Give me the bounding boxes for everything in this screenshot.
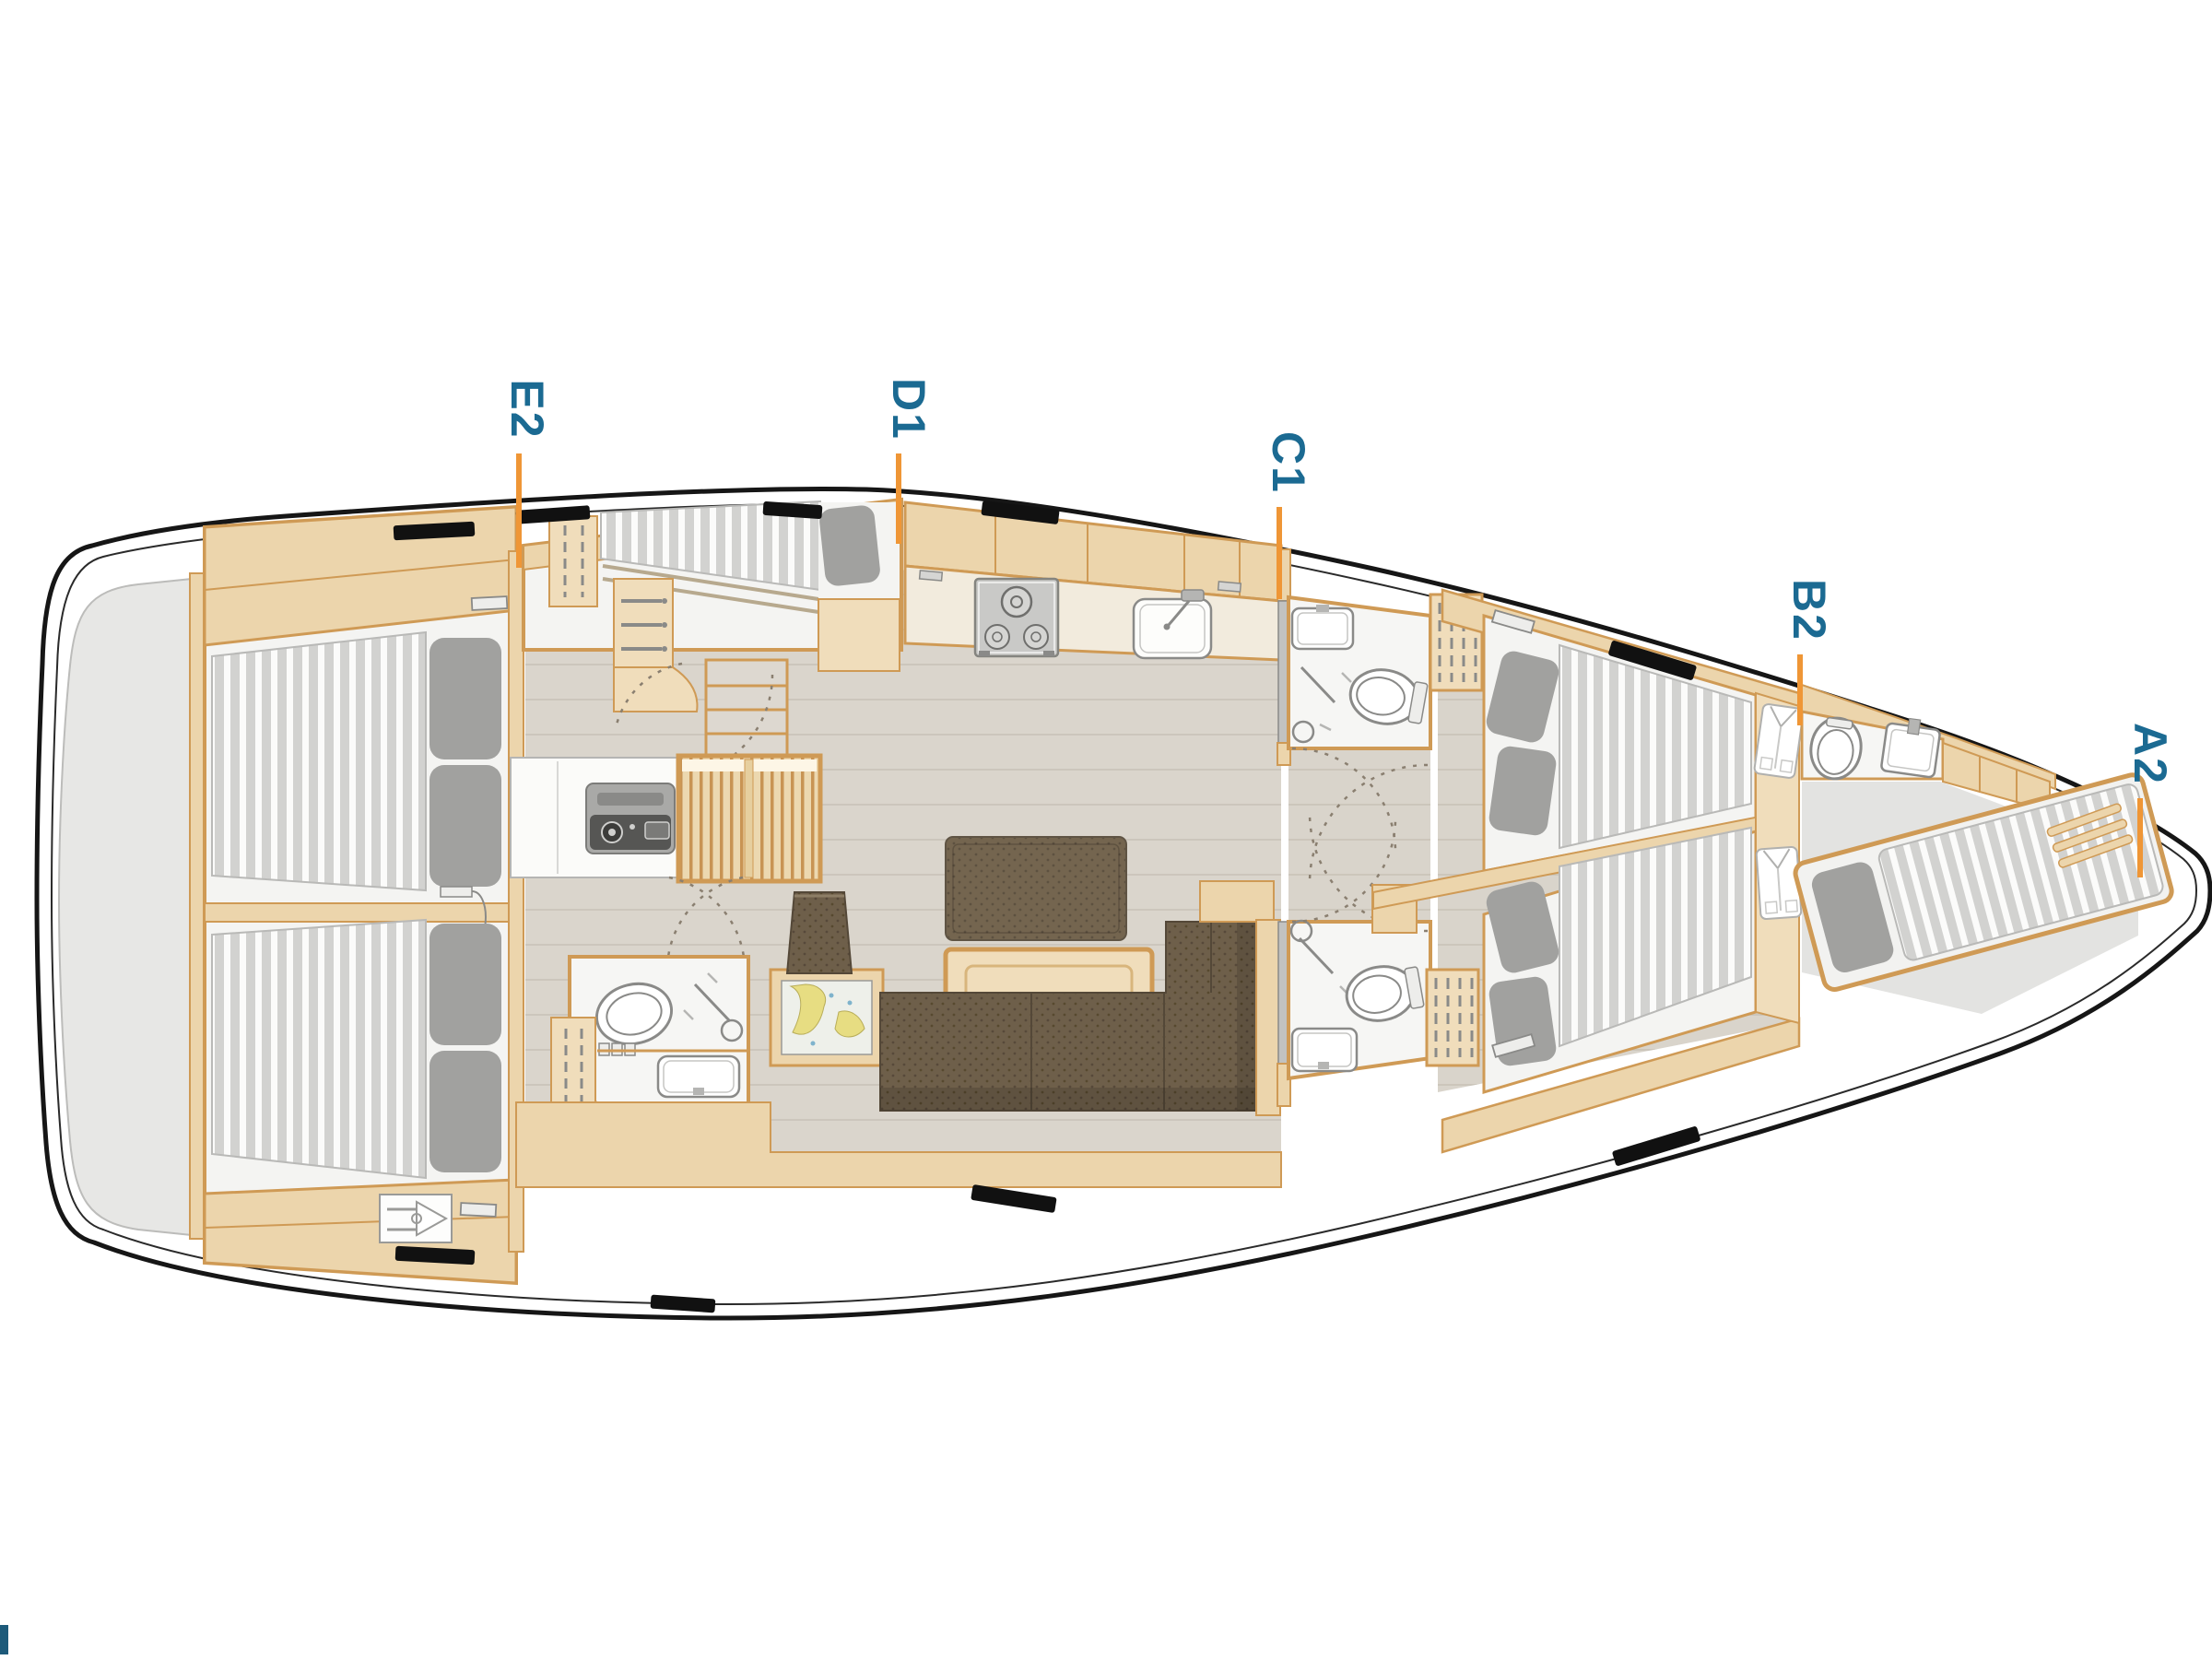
companionway-steps: [706, 660, 787, 756]
latch-icon: [1218, 582, 1241, 592]
stove-icon: [975, 579, 1058, 656]
stool: [787, 892, 852, 973]
cabin-d1: [524, 500, 901, 671]
louver-vent-icon: [1427, 970, 1478, 1065]
steering-gear-icon: [380, 1195, 452, 1242]
sink-icon: [1292, 1029, 1357, 1071]
sliding-door: [1278, 922, 1288, 1064]
label-b2-text: B2: [1783, 579, 1835, 642]
fwd-wardrobe-strip: [1754, 693, 1804, 1023]
label-a2-text: A2: [2124, 723, 2176, 785]
sink-icon: [658, 1056, 739, 1097]
aft-cabins: [190, 507, 516, 1283]
shirt-locker-icon: [1754, 703, 1804, 778]
sliding-door: [1278, 601, 1288, 743]
latch-icon: [920, 571, 943, 581]
wall-stub: [1200, 881, 1274, 922]
sink-icon: [1881, 715, 1942, 777]
latch-icon: [461, 1203, 497, 1217]
yacht-floorplan: E2 D1 C1 B2 A2: [0, 0, 2212, 1660]
head-mid-bottom: [1288, 921, 1430, 1078]
head-mid-top: [1288, 597, 1430, 748]
sink-icon: [1292, 605, 1353, 649]
leather-bench: [946, 837, 1126, 940]
pillow-icon: [818, 504, 881, 587]
chart-table-icon: [782, 981, 872, 1054]
clipped-logo-mark: [0, 1625, 8, 1654]
sink-icon: [1134, 590, 1211, 658]
latch-icon: [472, 596, 508, 610]
floorplan-page: E2 D1 C1 B2 A2: [0, 0, 2212, 1660]
stern-platform: [59, 579, 192, 1235]
double-bed-icon: [212, 632, 426, 890]
label-e2-text: E2: [501, 379, 553, 439]
pillow-icon: [429, 638, 501, 759]
appliance-icon: [586, 783, 675, 854]
hanging-locker-icon: [549, 516, 597, 606]
pillow-icon: [429, 924, 501, 1045]
pillow-icon: [429, 765, 501, 887]
pillow-icon: [429, 1051, 501, 1172]
pillow-icon: [1488, 745, 1558, 837]
label-d1-text: D1: [883, 378, 935, 441]
aft-cabin-divider: [205, 903, 516, 922]
drawers-icon: [614, 579, 673, 667]
galley: [905, 502, 1281, 660]
engine-box-louver: [678, 756, 820, 881]
label-c1-text: C1: [1263, 431, 1314, 494]
shirt-locker-icon: [1756, 847, 1801, 920]
double-bed-icon: [212, 920, 426, 1178]
chart-table: [771, 970, 883, 1065]
